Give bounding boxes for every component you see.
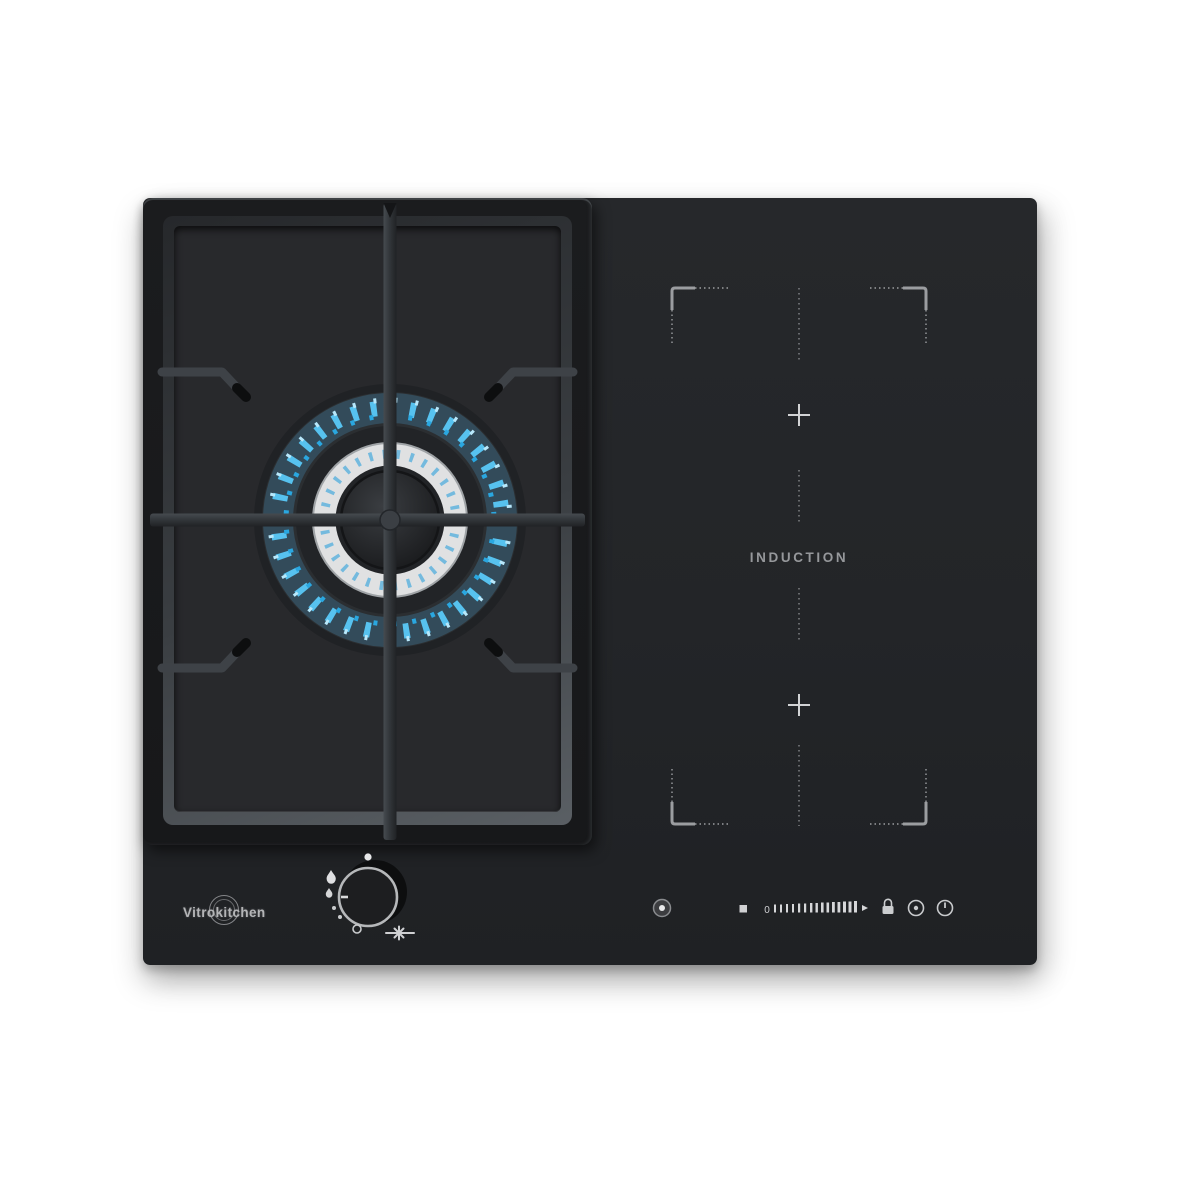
induction-label: INDUCTION: [750, 550, 848, 565]
hob-body: INDUCTION 0: [143, 198, 1037, 965]
brand-logo: Vitrokitchen: [181, 898, 301, 930]
lock-icon[interactable]: [883, 899, 894, 914]
stop-icon[interactable]: [740, 905, 748, 913]
touch-controls: 0: [654, 899, 953, 916]
gas-knob-group: [300, 840, 440, 952]
page-root: { "brand": { "logo_text": "Vitrokitchen"…: [0, 0, 1200, 1200]
flame-min-icon: [326, 888, 333, 898]
gas-burner-graphic: [143, 198, 592, 845]
off-dot-icon: [364, 853, 371, 860]
ignition-spark-icon: [386, 927, 414, 940]
brand-logo-text: Vitrokitchen: [183, 905, 266, 920]
min-circle-icon: [353, 925, 361, 933]
timer-icon[interactable]: [909, 901, 924, 916]
slider-min-label: 0: [764, 905, 770, 916]
power-level-slider[interactable]: 0: [764, 901, 868, 916]
power-icon[interactable]: [938, 901, 953, 916]
flame-max-icon: [327, 870, 336, 884]
power-sensor-icon[interactable]: [654, 900, 671, 917]
induction-zone-graphic: INDUCTION 0: [592, 198, 1037, 965]
gas-knob[interactable]: [339, 868, 397, 926]
pan-support: [150, 203, 585, 840]
